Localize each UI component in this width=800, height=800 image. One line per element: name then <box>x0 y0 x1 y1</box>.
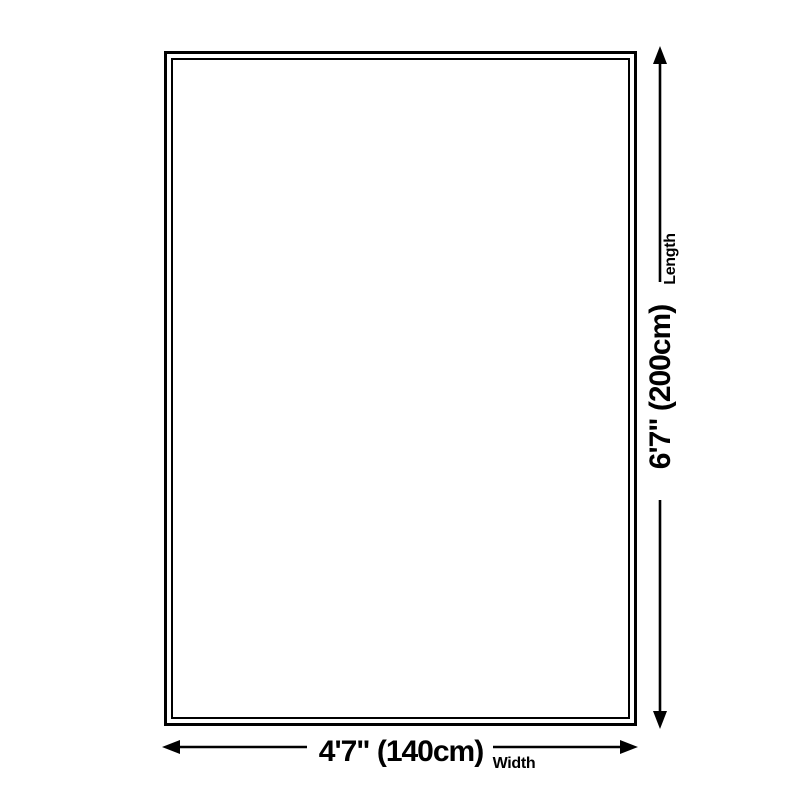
width-value-label: 4'7" (140cm) <box>319 737 483 767</box>
arrow-left-icon <box>162 740 180 754</box>
length-axis-label: Length <box>663 233 679 285</box>
arrow-up-icon <box>653 46 667 64</box>
diagram-canvas: 6'7" (200cm) Length 4'7" (140cm) Width <box>0 0 800 800</box>
width-axis-label: Width <box>493 756 536 772</box>
arrow-down-icon <box>653 711 667 729</box>
rug-outline <box>164 51 637 726</box>
length-value-label: 6'7" (200cm) <box>646 305 676 469</box>
arrow-right-icon <box>620 740 638 754</box>
rug-inner-border <box>171 58 630 719</box>
